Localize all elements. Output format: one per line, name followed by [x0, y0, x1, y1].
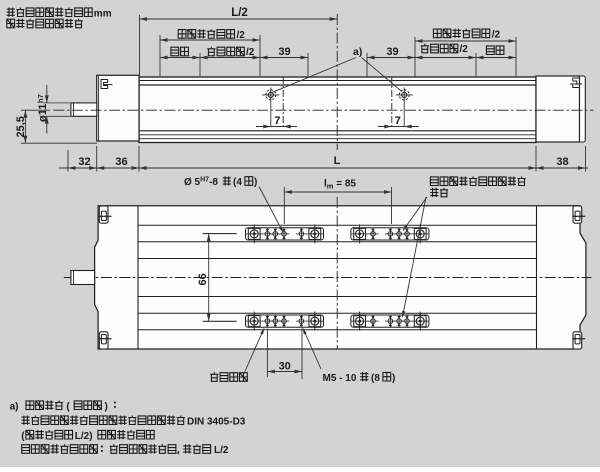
svg-text:36: 36 — [115, 156, 127, 168]
svg-text:/2: /2 — [237, 30, 246, 41]
svg-text:25,5: 25,5 — [15, 116, 27, 137]
svg-text:7: 7 — [274, 115, 280, 127]
svg-text:M5 - 10: M5 - 10 — [323, 373, 357, 384]
svg-text:L/2): L/2) — [75, 431, 93, 442]
svg-text:L/2: L/2 — [214, 445, 229, 456]
svg-text:L/2: L/2 — [231, 7, 248, 19]
svg-text:mm: mm — [94, 8, 112, 19]
svg-text:39: 39 — [278, 46, 290, 58]
svg-text:(8: (8 — [371, 373, 380, 384]
svg-text:(4: (4 — [233, 177, 242, 188]
svg-text:/2: /2 — [246, 47, 255, 58]
svg-text:h7: h7 — [36, 94, 45, 103]
svg-text:ø11: ø11 — [37, 104, 49, 122]
svg-text:): ) — [254, 177, 257, 188]
svg-text:32: 32 — [78, 156, 90, 168]
svg-text:L: L — [334, 155, 341, 167]
svg-text:38: 38 — [556, 156, 568, 168]
svg-text:a): a) — [353, 46, 362, 58]
svg-text:a): a) — [10, 401, 19, 412]
svg-text:39: 39 — [386, 46, 398, 58]
svg-text:66: 66 — [197, 273, 209, 285]
svg-text:/2: /2 — [460, 44, 469, 55]
svg-text:): ) — [105, 401, 108, 412]
svg-text:/2: /2 — [492, 30, 501, 41]
svg-text:): ) — [392, 373, 395, 384]
svg-text:7: 7 — [395, 115, 401, 127]
svg-text:DIN 3405-D3: DIN 3405-D3 — [187, 416, 246, 427]
svg-text:30: 30 — [279, 360, 291, 372]
